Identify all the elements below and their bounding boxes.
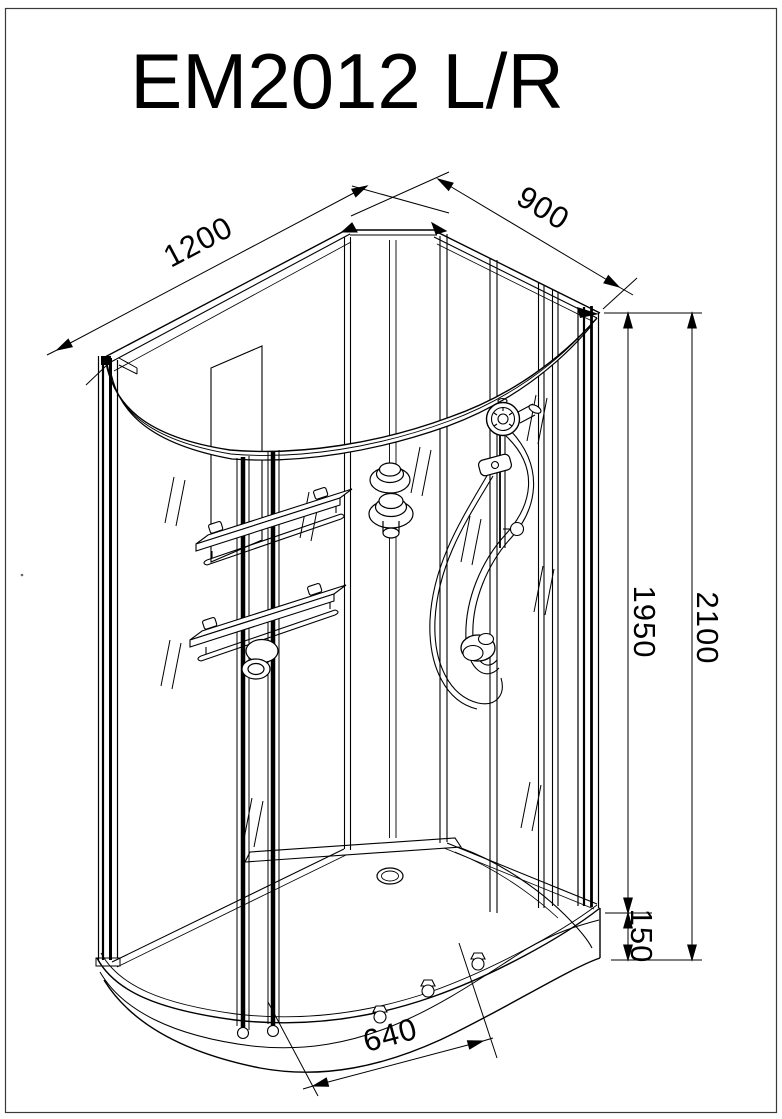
tray-skirt-bottom (104, 958, 600, 1072)
right-front-post (577, 306, 599, 908)
dim-label-tray-height: 150 (624, 909, 659, 964)
dim-label-width: 1200 (158, 209, 239, 274)
dim-label-cabin-height: 1950 (627, 586, 662, 659)
hand-shower (487, 403, 543, 436)
shower-tray (97, 905, 600, 1072)
tray-drain (377, 868, 403, 884)
left-front-post (96, 356, 137, 966)
drawing-sheet: EM2012 L/R (0, 0, 782, 1119)
tray-rim-outer (97, 908, 600, 1023)
dim-label-total-height: 2100 (690, 592, 725, 665)
sheet-border (6, 9, 777, 1113)
tray-back-step (245, 838, 461, 862)
corner-cap-right (432, 223, 446, 234)
tray-base-line (100, 920, 599, 1048)
shower-cabin-technical-drawing: EM2012 L/R (0, 0, 782, 1119)
back-wall-panels (105, 223, 600, 967)
dimension-lines (47, 172, 702, 1096)
model-title: EM2012 L/R (130, 37, 564, 125)
control-knobs (369, 463, 413, 538)
dimension-width-1200 (47, 172, 449, 385)
slide-bracket (477, 453, 512, 477)
corner-cap-left (342, 223, 357, 232)
print-speck (21, 574, 24, 577)
tray-rim-inner (101, 905, 597, 1017)
